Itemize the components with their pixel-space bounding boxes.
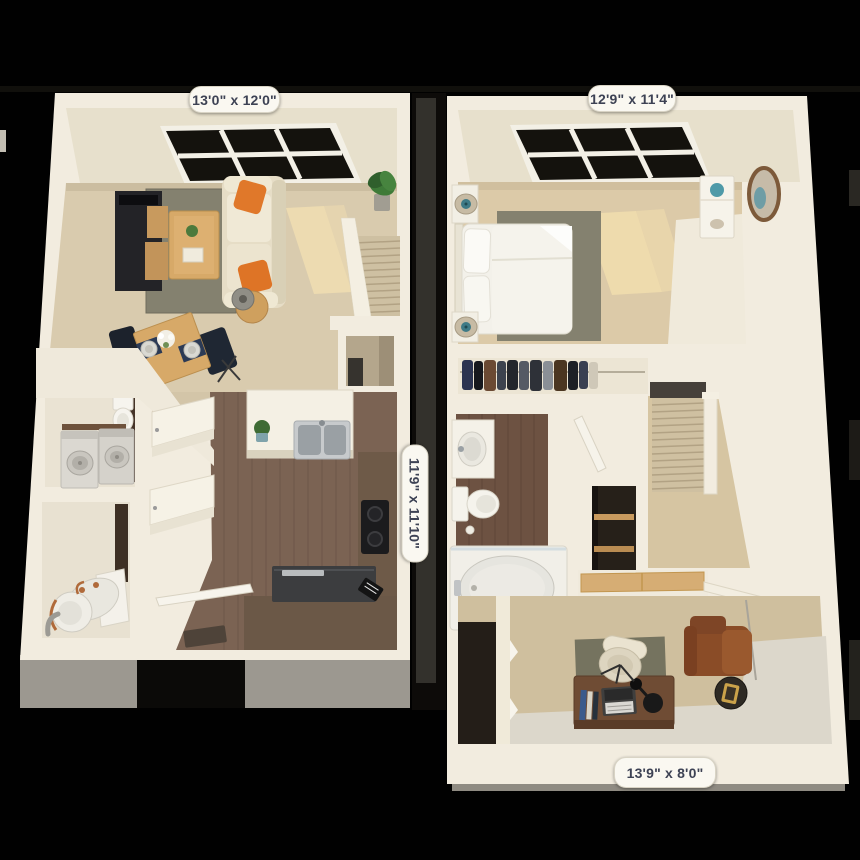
- dresser: [700, 176, 734, 238]
- tv-console: [115, 191, 168, 291]
- double-sink-icon: [294, 420, 350, 459]
- kitchen-counter: [247, 390, 353, 459]
- books-icon: [579, 690, 599, 721]
- coffee-table: [169, 211, 219, 279]
- dimension-label-bedroom: 12'9" x 11'4": [588, 85, 676, 112]
- second-floor-unit: [447, 96, 849, 791]
- table-plant-icon: [186, 225, 198, 237]
- dimension-label-office: 13'9" x 8'0": [614, 757, 716, 788]
- first-floor-unit: [20, 93, 410, 708]
- linen-closet: [592, 486, 636, 572]
- teal-vase-icon: [710, 183, 724, 197]
- background-shadow-band: [0, 86, 860, 92]
- washer-icon: [61, 431, 98, 488]
- wall-shadow: [458, 182, 742, 190]
- nightstand-top: [452, 185, 478, 223]
- dimension-label-living-room: 13'0" x 12'0": [189, 86, 280, 113]
- background-sliver: [0, 130, 6, 152]
- utility-room: [42, 502, 130, 638]
- bedroom-closet: [458, 358, 648, 394]
- stairwell-opening: [650, 382, 706, 398]
- background-streak: [849, 420, 860, 480]
- cooktop-icon: [361, 500, 389, 554]
- nightstand-bottom: [452, 312, 478, 342]
- dryer-icon: [99, 429, 134, 484]
- background-streak: [849, 170, 860, 206]
- shelf: [594, 546, 634, 552]
- floorplan-image: 13'0" x 12'0" 12'9" x 11'4" 11'9" x 11'1…: [0, 0, 860, 860]
- office: [458, 596, 832, 744]
- side-table: [715, 677, 747, 709]
- background-streak: [849, 640, 860, 720]
- dark-doorway: [458, 622, 496, 744]
- desk: [574, 676, 674, 729]
- pillow: [463, 229, 491, 274]
- shelf: [594, 514, 634, 520]
- wall-mirror: [749, 168, 779, 220]
- base-cabinets: [244, 596, 397, 650]
- floorplan-artwork: [0, 0, 860, 860]
- vanity-sink-icon: [452, 420, 494, 478]
- newel-post: [702, 392, 719, 399]
- wall-strip: [496, 596, 510, 744]
- hanging-clothes: [462, 360, 598, 391]
- sofa: [222, 176, 286, 308]
- laundry-room: [45, 394, 135, 488]
- stair-stringer: [704, 396, 717, 494]
- between-units-shadow: [416, 98, 436, 683]
- kitchen-island: [272, 566, 376, 602]
- bedroom-window: [510, 122, 712, 186]
- laptop-icon: [601, 686, 637, 716]
- dimension-label-kitchen: 11'9" x 11'10": [402, 445, 429, 563]
